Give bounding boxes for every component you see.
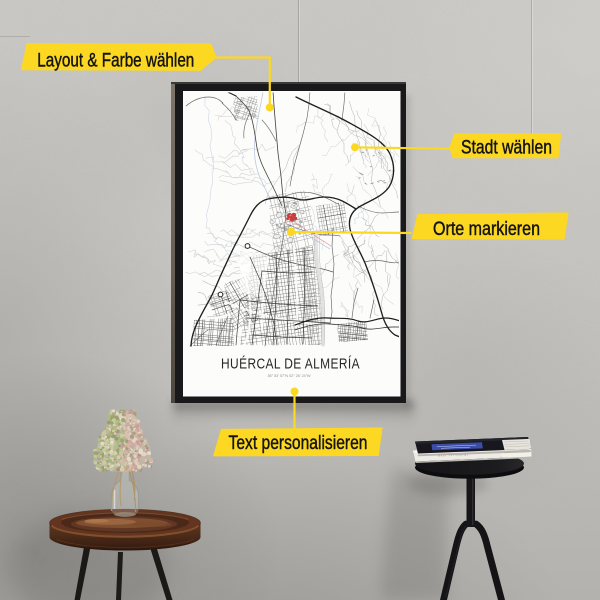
svg-text:Layout & Farbe wählen: Layout & Farbe wählen [37, 49, 194, 71]
svg-text:Orte markieren: Orte markieren [433, 218, 540, 240]
svg-text:Stadt wählen: Stadt wählen [461, 137, 552, 159]
svg-text:Text personalisieren: Text personalisieren [229, 432, 368, 454]
